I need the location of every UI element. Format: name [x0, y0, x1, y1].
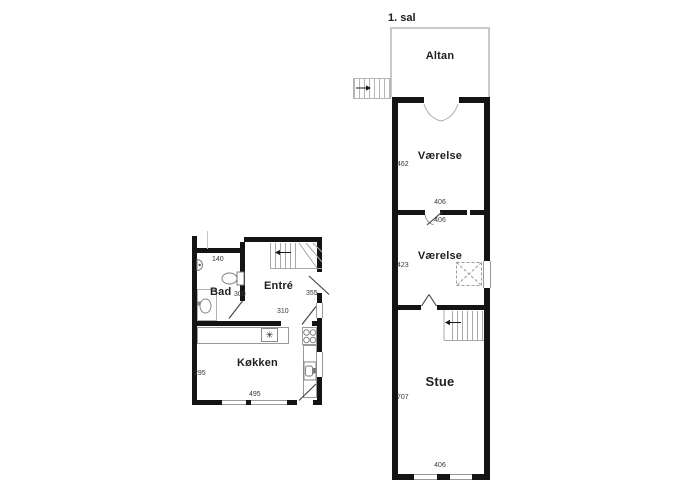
external-stairs [353, 78, 391, 99]
fixtures-overlay [0, 0, 700, 500]
dimension: 707 [397, 394, 409, 401]
appliance-symbol: ✳ [261, 328, 278, 342]
entre-stairs [270, 243, 299, 269]
stove-box [302, 327, 317, 345]
dimension: 423 [397, 262, 409, 269]
room-label-entre: Entré [264, 280, 293, 292]
window [222, 400, 246, 405]
upper-floor-title: 1. sal [388, 12, 416, 24]
window [316, 303, 323, 318]
wall [397, 210, 425, 215]
wall-basin-icon [197, 260, 203, 271]
room-label-koekken: Køkken [200, 357, 315, 369]
room-label-altan: Altan [390, 50, 490, 62]
wall [287, 400, 297, 405]
skylight-symbol [457, 263, 482, 286]
window [450, 474, 472, 480]
wall [317, 318, 322, 353]
wall [437, 305, 484, 310]
dimension: 406 [392, 217, 488, 224]
wall [484, 97, 490, 261]
wall [317, 237, 322, 272]
door-bad [229, 301, 243, 319]
dimension: 310 [277, 308, 289, 315]
room-label-bad: Bad [210, 286, 231, 298]
kitchen-counter-right [303, 345, 317, 398]
window [316, 352, 323, 377]
door-vaerelse2 [422, 295, 437, 307]
wall [192, 400, 222, 405]
wall [192, 321, 281, 326]
wall [440, 210, 467, 215]
dimension: 406 [392, 462, 488, 469]
window [251, 400, 287, 405]
window [483, 261, 491, 288]
dimension: 355 [306, 290, 318, 297]
dimension: 140 [212, 256, 224, 263]
wall [470, 210, 484, 215]
wall [313, 400, 322, 405]
wall [397, 305, 421, 310]
wall [472, 474, 490, 480]
room-label-vaerelse-2: Værelse [392, 250, 488, 262]
dimension: 462 [397, 161, 409, 168]
window [414, 474, 437, 480]
dimension: 295 [194, 370, 206, 377]
wall [437, 474, 450, 480]
internal-stairs [452, 311, 484, 340]
dimension: 300 [234, 291, 246, 298]
wall [392, 474, 414, 480]
balcony-outline [390, 27, 490, 97]
roof-edge-line [207, 231, 208, 249]
dimension: 495 [249, 391, 261, 398]
floorplan-canvas: 1. sal Altan Værelse 462 406 406 Værelse… [0, 0, 700, 500]
dimension: 406 [392, 199, 488, 206]
balcony-double-door [424, 104, 458, 121]
room-label-stue: Stue [392, 374, 488, 389]
wall [192, 248, 245, 253]
wall [244, 237, 322, 242]
